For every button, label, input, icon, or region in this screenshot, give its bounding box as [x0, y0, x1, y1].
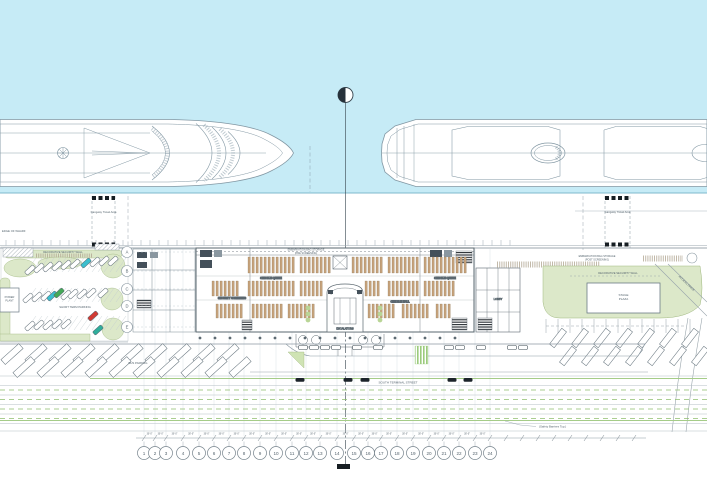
stair-block-east-2	[478, 318, 492, 330]
dimension-text: 30'-0"	[310, 434, 316, 436]
plaza-left-label-1: POWER	[5, 295, 15, 299]
grid-bubble-number: 12	[303, 451, 309, 456]
dimension-string: 30'-0"30'-0"30'-0"30'-0"30'-0"30'-0"30'-…	[136, 434, 646, 442]
escalators-label: ESCALATORS	[336, 327, 353, 331]
gangway-label-left: Gangway Travel Area	[91, 210, 117, 214]
grid-bubble-number: 22	[456, 451, 462, 456]
site-plan-sheet: Gangway Travel Area Gangway Travel Area …	[0, 0, 707, 500]
grid-bubble-number: 17	[378, 451, 384, 456]
gangway-area-left: Gangway Travel Area	[91, 196, 117, 248]
dimension-text: 30'-0"	[219, 434, 225, 436]
dimension-text: 30'-0"	[418, 434, 424, 436]
grid-bubble-number: 4	[182, 451, 185, 456]
street-label: SOUTH TERMINAL STREET	[378, 381, 417, 385]
traffic-island	[288, 352, 304, 368]
checkin-queue-west-label: CHECK-IN QUEUE	[260, 277, 282, 280]
dimension-text: 30'-0"	[358, 434, 364, 436]
coach-parking-west	[1, 344, 251, 378]
dimension-text: 30'-0"	[158, 434, 164, 436]
dimension-text: 30'-0"	[281, 434, 287, 436]
dimension-text: 30'-0"	[434, 434, 440, 436]
dimension-text: 30'-0"	[480, 434, 486, 436]
storage-pre-label-2: (PRE SCREENING)	[295, 252, 318, 255]
windlass-icon	[58, 148, 69, 159]
canopy-hatch-west	[95, 244, 119, 250]
dimension-text: 30'-0"	[204, 434, 210, 436]
grid-bubble-number: 14	[334, 451, 340, 456]
site-plan-drawing: Gangway Travel Area Gangway Travel Area …	[0, 0, 707, 500]
grid-bubble-number: 6	[213, 451, 216, 456]
gangway-label-right: Gangway Travel Area	[605, 210, 631, 214]
entrance-canopy	[296, 334, 384, 356]
grid-bubble-number: 24	[487, 451, 493, 456]
grid-bubble-extra	[687, 253, 697, 263]
short-term-parking-label: SHORT TERM PARKING	[59, 305, 91, 309]
grid-row-letter: D	[125, 304, 128, 309]
lobby-label: LOBBY	[494, 297, 503, 301]
dimension-text: 30'-0"	[265, 434, 271, 436]
grid-bubble-number: 2	[154, 451, 157, 456]
grid-bubble-number: 19	[410, 451, 416, 456]
dimension-text: 30'-0"	[234, 434, 240, 436]
dimension-text: 30'-0"	[188, 434, 194, 436]
grid-bubble-number: 20	[426, 451, 432, 456]
grid-bubble-number: 21	[441, 451, 447, 456]
terminal-building: ESCALATORS SECURITY SCREENING CHECK-IN Q…	[196, 248, 474, 356]
dimension-text: 30'-0"	[249, 434, 255, 436]
grid-bubble-number: 1	[143, 451, 146, 456]
crosswalk	[415, 346, 428, 364]
dimension-text: 30'-0"	[172, 434, 178, 436]
gangway-area-right: Gangway Travel Area	[605, 196, 631, 248]
grid-bubble-number: 15	[351, 451, 357, 456]
grid-bubble-number: 10	[273, 451, 279, 456]
grid-row-letter: C	[125, 287, 128, 292]
right-plaza: STAGE PLAZA EMBARKATION BAG STORAGE (POS…	[543, 253, 707, 432]
plaza-left-label-2: PLANT	[5, 299, 14, 303]
section-cut-mark	[337, 464, 350, 469]
grid-row-letter: A	[126, 250, 129, 255]
dimension-text: 30'-0"	[386, 434, 392, 436]
edge-of-wharf-label: EDGE OF WHARF	[2, 229, 26, 233]
cruise-ship-2	[382, 120, 707, 187]
grid-bubble-number: 8	[243, 451, 246, 456]
grid-bubble-number: 5	[198, 451, 201, 456]
checkin-queue-east-label: CHECK-IN QUEUE	[434, 277, 456, 280]
grid-bubble-number: 16	[365, 451, 371, 456]
cruise-ship-1	[0, 120, 294, 187]
grid-bubble-number: 11	[290, 451, 295, 456]
grid-bubble-number: 7	[228, 451, 231, 456]
grid-row-letter: B	[126, 269, 129, 274]
left-parking-lot: POWER PLANT SHORT TERM PARKING	[0, 244, 128, 341]
east-annex: LOBBY	[476, 268, 520, 332]
pier-apron	[0, 196, 707, 250]
grid-bubble-number: 23	[472, 451, 478, 456]
security-screening-label: SECURITY SCREENING	[218, 297, 246, 300]
roadway: BUS PARKING SOUTH TERMINAL STREET (Safet…	[0, 342, 707, 431]
safety-barriers-label: (Safety Barriers Typ.)	[539, 425, 566, 429]
stair-block-east-1	[452, 318, 467, 330]
dimension-text: 30'-0"	[147, 434, 153, 436]
storage-post-label-2: (POST SCREENING)	[585, 258, 609, 261]
grid-bubble-number: 18	[394, 451, 400, 456]
security-wall-label-right: DECORATIVE SECURITY WALL	[598, 271, 638, 275]
dimension-text: 30'-0"	[372, 434, 378, 436]
security-wall-label-left: DECORATIVE SECURITY WALL	[43, 250, 83, 254]
grid-bubble-number: 3	[165, 451, 168, 456]
dimension-text: 30'-0"	[402, 434, 408, 436]
dimension-text: 30'-0"	[343, 434, 349, 436]
bus-parking-label: BUS PARKING	[129, 361, 148, 365]
grid-bubble-number: 9	[259, 451, 262, 456]
dimension-text: 30'-0"	[464, 434, 470, 436]
dimension-text: 30'-0"	[449, 434, 455, 436]
dimension-text: 30'-0"	[296, 434, 302, 436]
security-checkpoint	[133, 249, 195, 332]
plaza-right-label-2: PLAZA	[619, 297, 629, 301]
checkin-hall-label: CHECK-IN HALL	[390, 301, 410, 304]
grid-bubble-number: 13	[317, 451, 323, 456]
grid-row-letter: E	[126, 325, 129, 330]
dimension-text: 30'-0"	[326, 434, 332, 436]
stair-block-west	[242, 320, 252, 330]
crosswalk-hatch-west	[3, 248, 33, 257]
grid-bubbles: 123456789101112131415161718192021222324	[138, 442, 497, 460]
